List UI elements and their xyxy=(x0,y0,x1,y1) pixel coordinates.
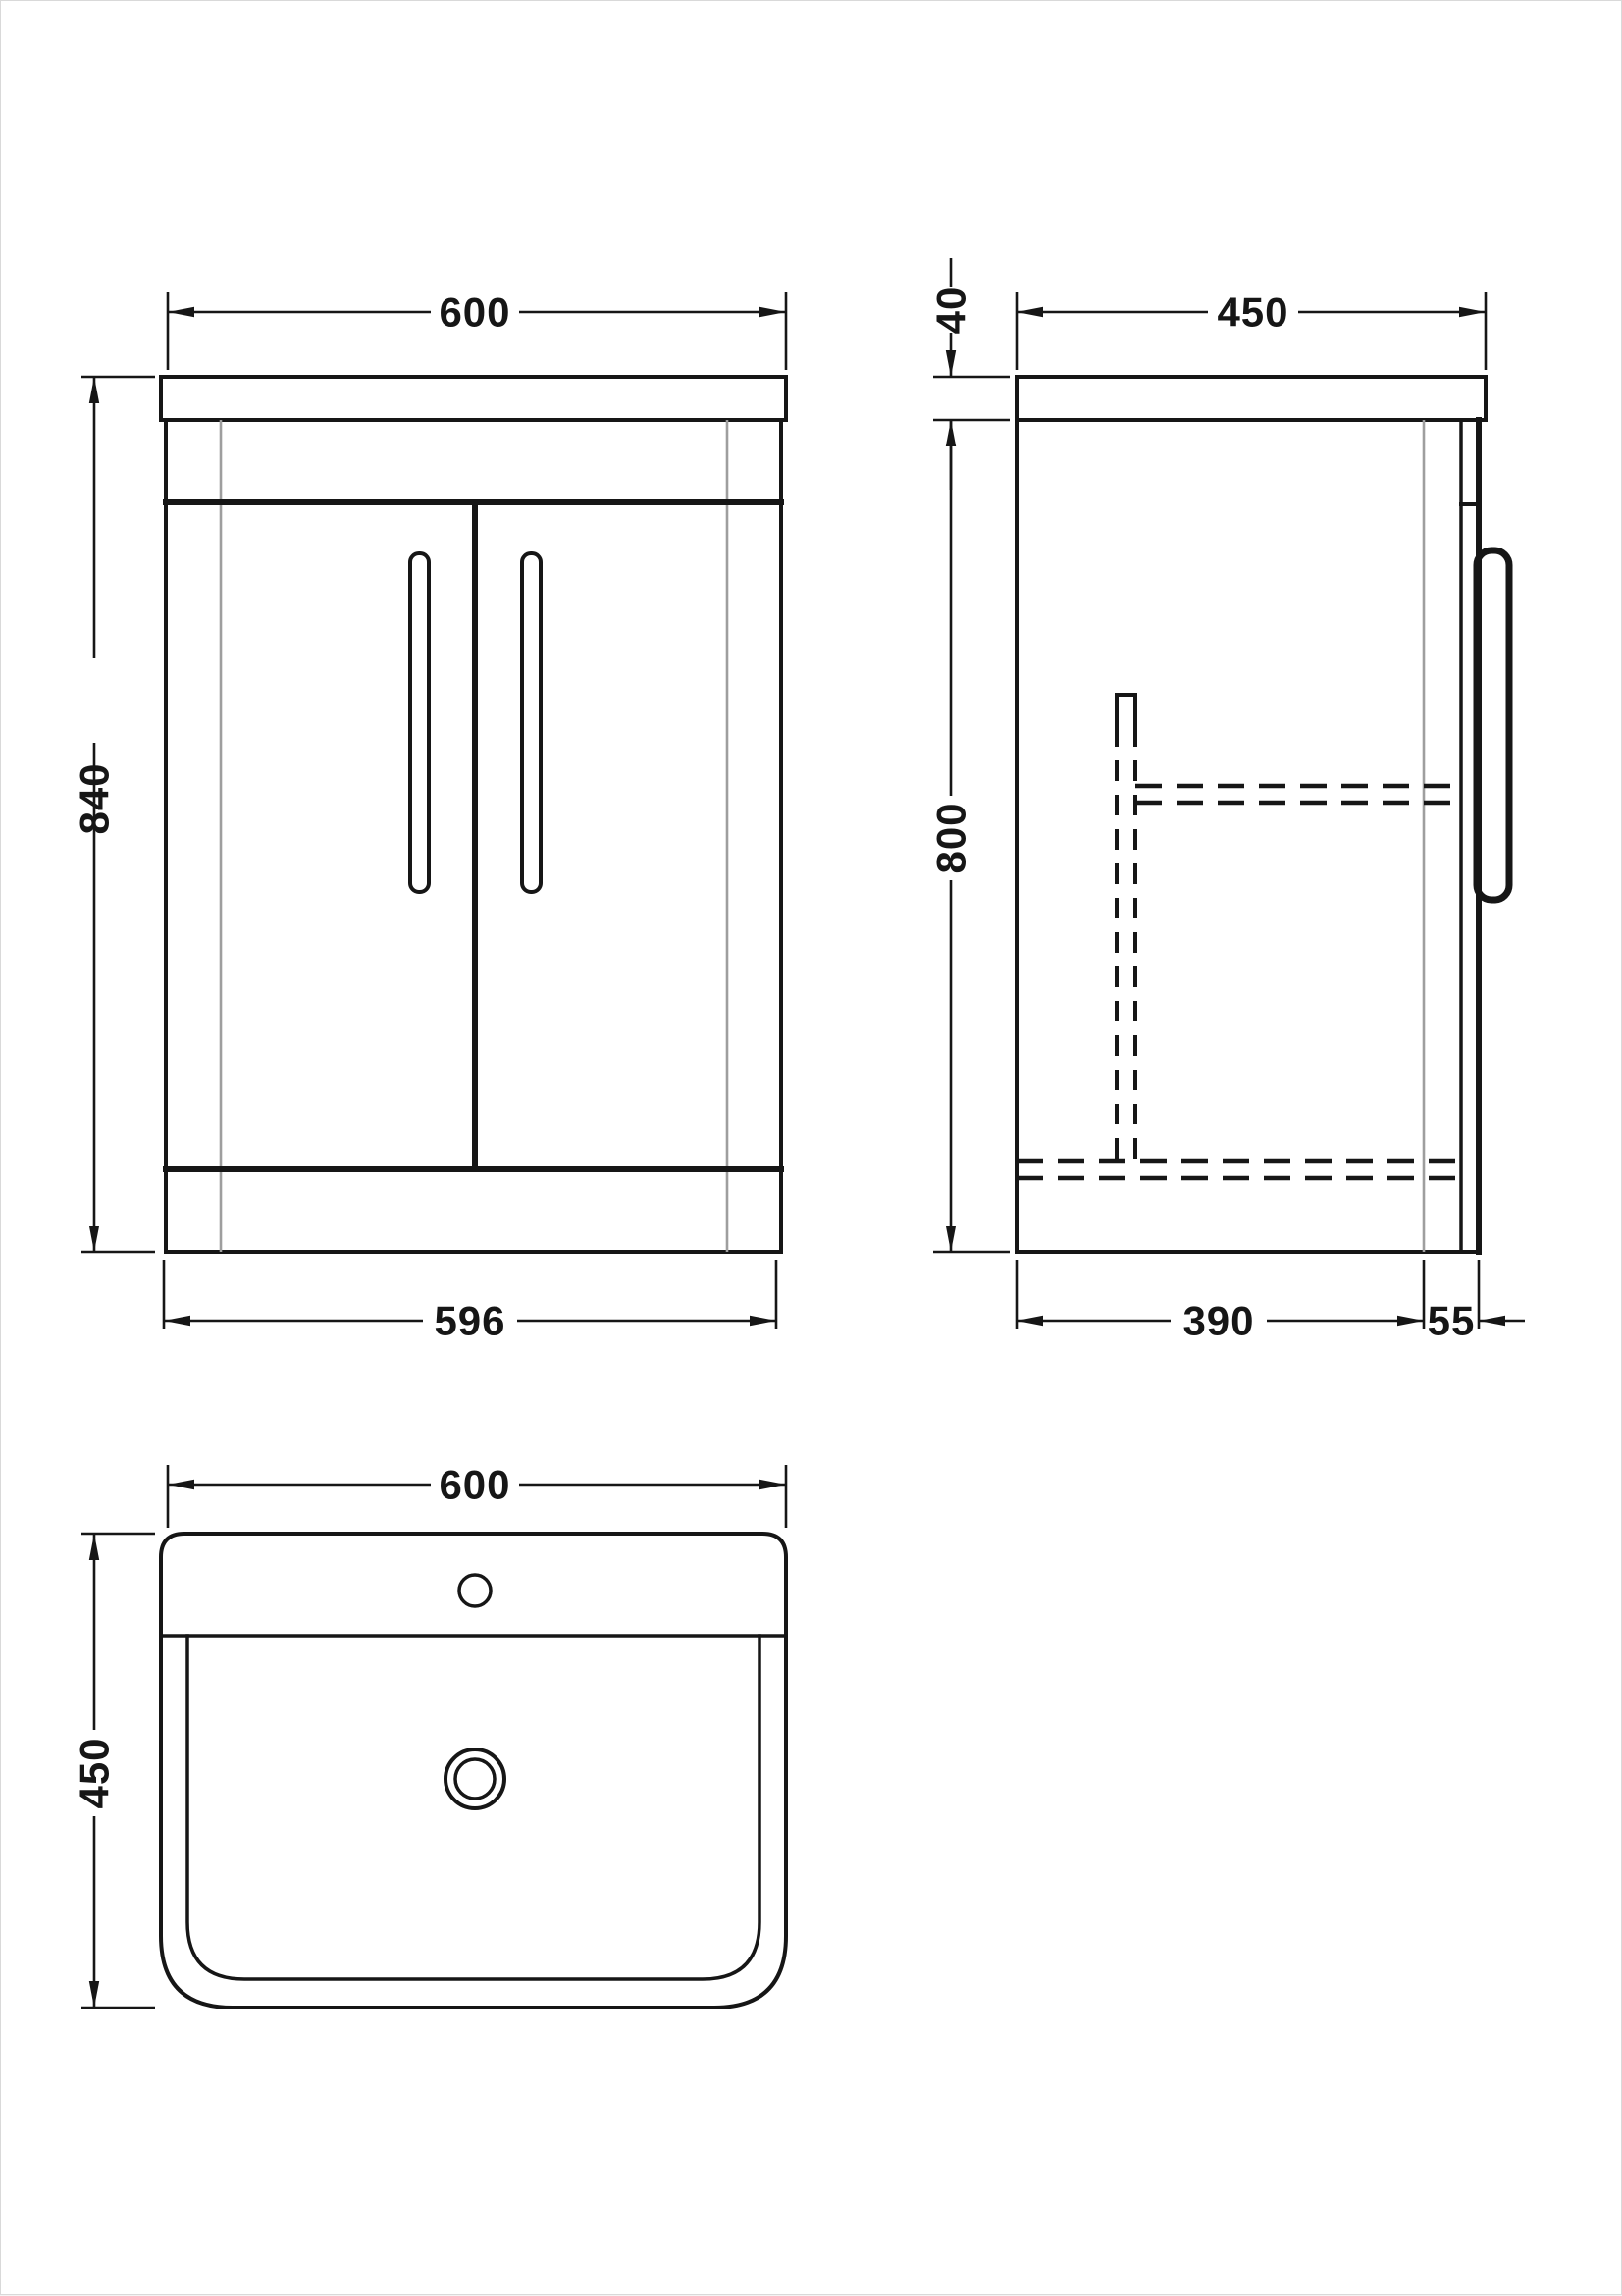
waste-hole-inner xyxy=(455,1759,495,1799)
counter-thickness-dimension: 40 xyxy=(928,258,1010,490)
front-width-dimension: 600 xyxy=(168,289,786,370)
front-height-dimension: 840 xyxy=(72,377,155,1252)
counter-top-front-outline xyxy=(161,377,786,420)
arrowhead xyxy=(1479,1316,1505,1326)
front-elevation-view: 600 840 596 xyxy=(72,289,786,1344)
arrowhead xyxy=(89,1534,99,1560)
front-height-dim-label: 840 xyxy=(72,762,118,834)
arrowhead xyxy=(1017,307,1043,317)
basin-plan-view: 600 450 xyxy=(72,1462,786,2008)
side-height-dim-label: 800 xyxy=(928,802,974,873)
arrowhead xyxy=(1397,1316,1424,1326)
arrowhead xyxy=(168,307,194,317)
arrowhead xyxy=(750,1316,776,1326)
technical-drawing-canvas: 600 840 596 xyxy=(0,0,1622,2295)
side-elevation-view: 450 40 800 xyxy=(928,258,1525,1344)
tap-hole xyxy=(459,1575,491,1606)
plan-width-dim-label: 600 xyxy=(439,1462,510,1508)
arrowhead xyxy=(1459,307,1486,317)
side-height-dimension: 800 xyxy=(928,420,1010,1252)
arrowhead xyxy=(759,307,786,317)
arrowhead xyxy=(164,1316,190,1326)
front-carcass-width-dim-label: 596 xyxy=(434,1298,505,1344)
side-carcass-depth-dim-label: 390 xyxy=(1182,1298,1254,1344)
arrowhead xyxy=(1017,1316,1043,1326)
side-bottom-dimensions: 390 55 xyxy=(1017,1260,1525,1344)
arrowhead xyxy=(946,350,956,377)
front-carcass-width-dimension: 596 xyxy=(164,1260,776,1344)
side-depth-dim-label: 450 xyxy=(1217,289,1288,336)
plan-width-dimension: 600 xyxy=(168,1462,786,1528)
side-depth-dimension: 450 xyxy=(1017,289,1486,370)
arrowhead xyxy=(89,1226,99,1252)
arrowhead xyxy=(89,377,99,403)
front-width-dim-label: 600 xyxy=(439,289,510,336)
door-handle-left xyxy=(410,553,429,892)
arrowhead xyxy=(89,1981,99,2008)
arrowhead xyxy=(168,1480,194,1489)
door-handle-right xyxy=(522,553,541,892)
counter-thickness-dim-label: 40 xyxy=(928,287,974,335)
arrowhead xyxy=(946,1226,956,1252)
plan-depth-dimension: 450 xyxy=(72,1534,155,2008)
waste-pipe-cap-hidden xyxy=(1117,695,1135,726)
counter-top-side-outline xyxy=(1017,377,1486,420)
arrowhead xyxy=(759,1480,786,1489)
plan-depth-dim-label: 450 xyxy=(72,1737,118,1808)
side-door-offset-dim-label: 55 xyxy=(1428,1298,1476,1344)
